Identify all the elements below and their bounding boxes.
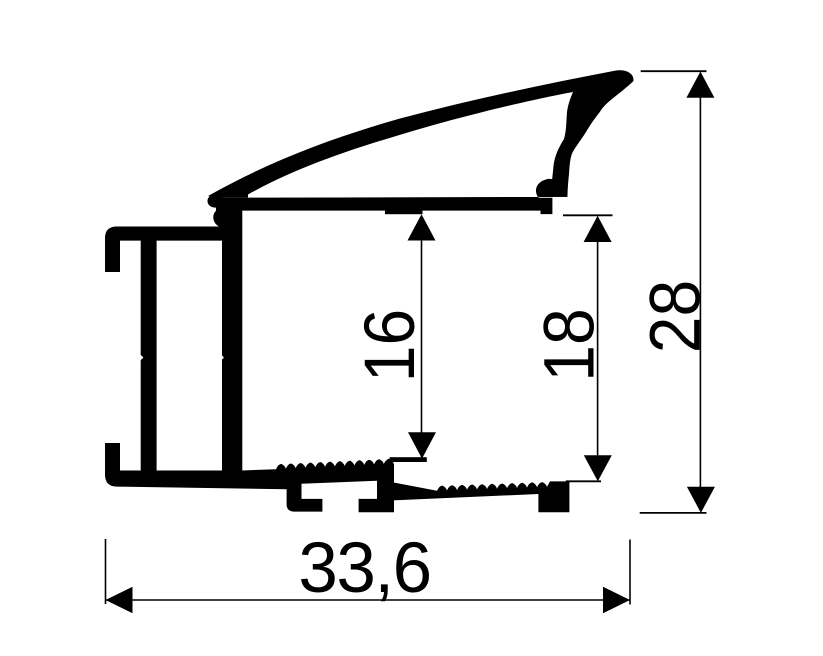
svg-text:33,6: 33,6 — [298, 529, 430, 608]
svg-text:16: 16 — [350, 309, 430, 382]
svg-text:28: 28 — [635, 280, 715, 353]
svg-text:18: 18 — [529, 308, 609, 381]
